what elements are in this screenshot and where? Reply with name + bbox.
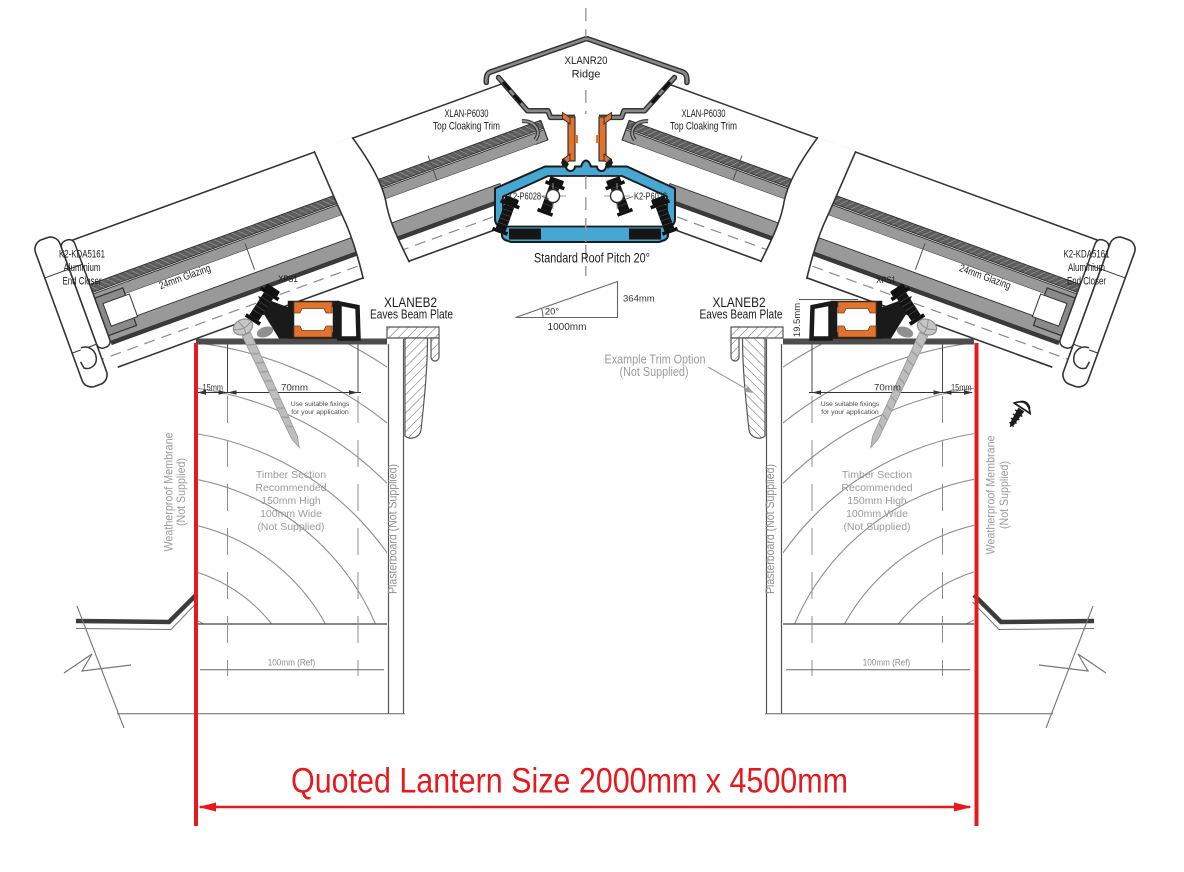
svg-text:100mm Wide: 100mm Wide [260,508,322,520]
svg-text:15mm: 15mm [203,383,224,394]
svg-text:Quoted Lantern Size 2000mm x 4: Quoted Lantern Size 2000mm x 4500mm [291,762,848,801]
svg-text:19.5mm: 19.5mm [792,303,803,337]
svg-text:(Not Supplied): (Not Supplied) [174,458,188,526]
svg-text:1000mm: 1000mm [548,322,587,333]
svg-text:XPS1: XPS1 [278,274,298,285]
svg-text:20°: 20° [545,307,560,318]
svg-text:End Closer: End Closer [1067,276,1106,288]
svg-text:Top Cloaking Trim: Top Cloaking Trim [670,121,737,133]
svg-text:70mm: 70mm [874,383,901,394]
svg-text:150mm High: 150mm High [847,495,907,507]
svg-text:100mm (Ref): 100mm (Ref) [863,658,911,668]
svg-text:XLAN-P6030: XLAN-P6030 [445,108,489,120]
svg-text:XLAN-P6030: XLAN-P6030 [682,108,726,120]
svg-text:364mm: 364mm [623,294,655,305]
svg-text:K2-KDA5161: K2-KDA5161 [1064,249,1110,261]
svg-text:100mm Wide: 100mm Wide [846,508,908,520]
svg-text:End Closer: End Closer [63,276,102,288]
svg-text:Eaves Beam Plate: Eaves Beam Plate [370,308,453,322]
svg-text:(Not Supplied): (Not Supplied) [620,365,689,379]
svg-text:Aluminium: Aluminium [1068,262,1105,274]
svg-text:Use suitable fixings: Use suitable fixings [291,401,350,408]
svg-text:Recommended: Recommended [841,482,912,494]
svg-text:Timber Section: Timber Section [256,469,326,481]
svg-text:Plasterboard (Not Supplied): Plasterboard (Not Supplied) [386,464,400,594]
svg-text:for your application: for your application [291,409,349,416]
svg-text:Weatherproof Membrane: Weatherproof Membrane [984,435,998,554]
svg-text:for your application: for your application [821,409,879,416]
svg-text:K2-P6028: K2-P6028 [634,192,667,203]
svg-text:XLANR20: XLANR20 [565,55,608,67]
svg-text:Aluminium: Aluminium [64,262,101,274]
svg-text:Recommended: Recommended [255,482,326,494]
svg-text:Standard Roof Pitch 20°: Standard Roof Pitch 20° [534,251,650,266]
svg-text:Plasterboard (Not Supplied): Plasterboard (Not Supplied) [763,464,777,594]
svg-text:(Not Supplied): (Not Supplied) [997,461,1011,529]
svg-text:Top Cloaking Trim: Top Cloaking Trim [433,121,500,133]
svg-text:Timber Section: Timber Section [842,469,912,481]
svg-text:Use suitable fixings: Use suitable fixings [821,401,880,408]
svg-text:(Not Supplied): (Not Supplied) [257,521,324,533]
svg-text:XPS1: XPS1 [876,275,896,286]
svg-text:Eaves Beam Plate: Eaves Beam Plate [700,308,783,322]
svg-text:K2-P6028: K2-P6028 [508,192,541,203]
svg-text:100mm (Ref): 100mm (Ref) [268,658,316,668]
svg-text:Ridge: Ridge [572,69,601,81]
svg-text:K2-KDA5161: K2-KDA5161 [59,249,105,261]
svg-text:150mm High: 150mm High [261,495,321,507]
svg-text:70mm: 70mm [281,383,308,394]
svg-text:(Not Supplied): (Not Supplied) [843,521,910,533]
svg-text:15mm: 15mm [951,383,972,394]
